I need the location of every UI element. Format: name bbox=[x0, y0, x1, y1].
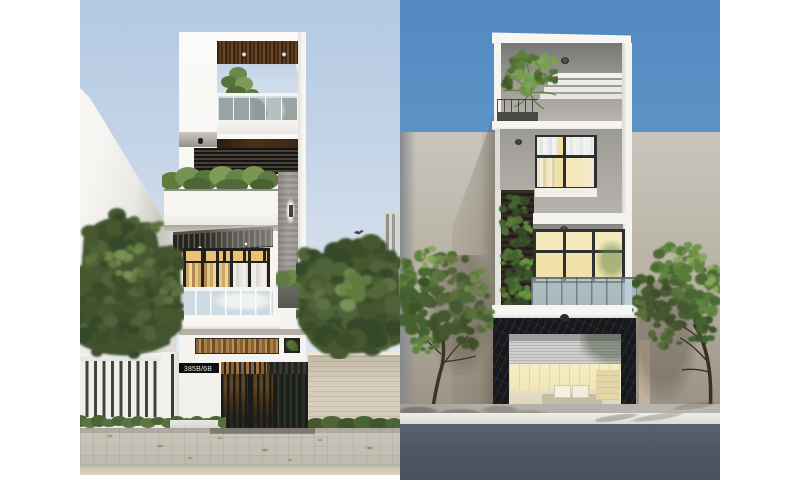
svg-text:385B/6B: 385B/6B bbox=[184, 366, 212, 373]
